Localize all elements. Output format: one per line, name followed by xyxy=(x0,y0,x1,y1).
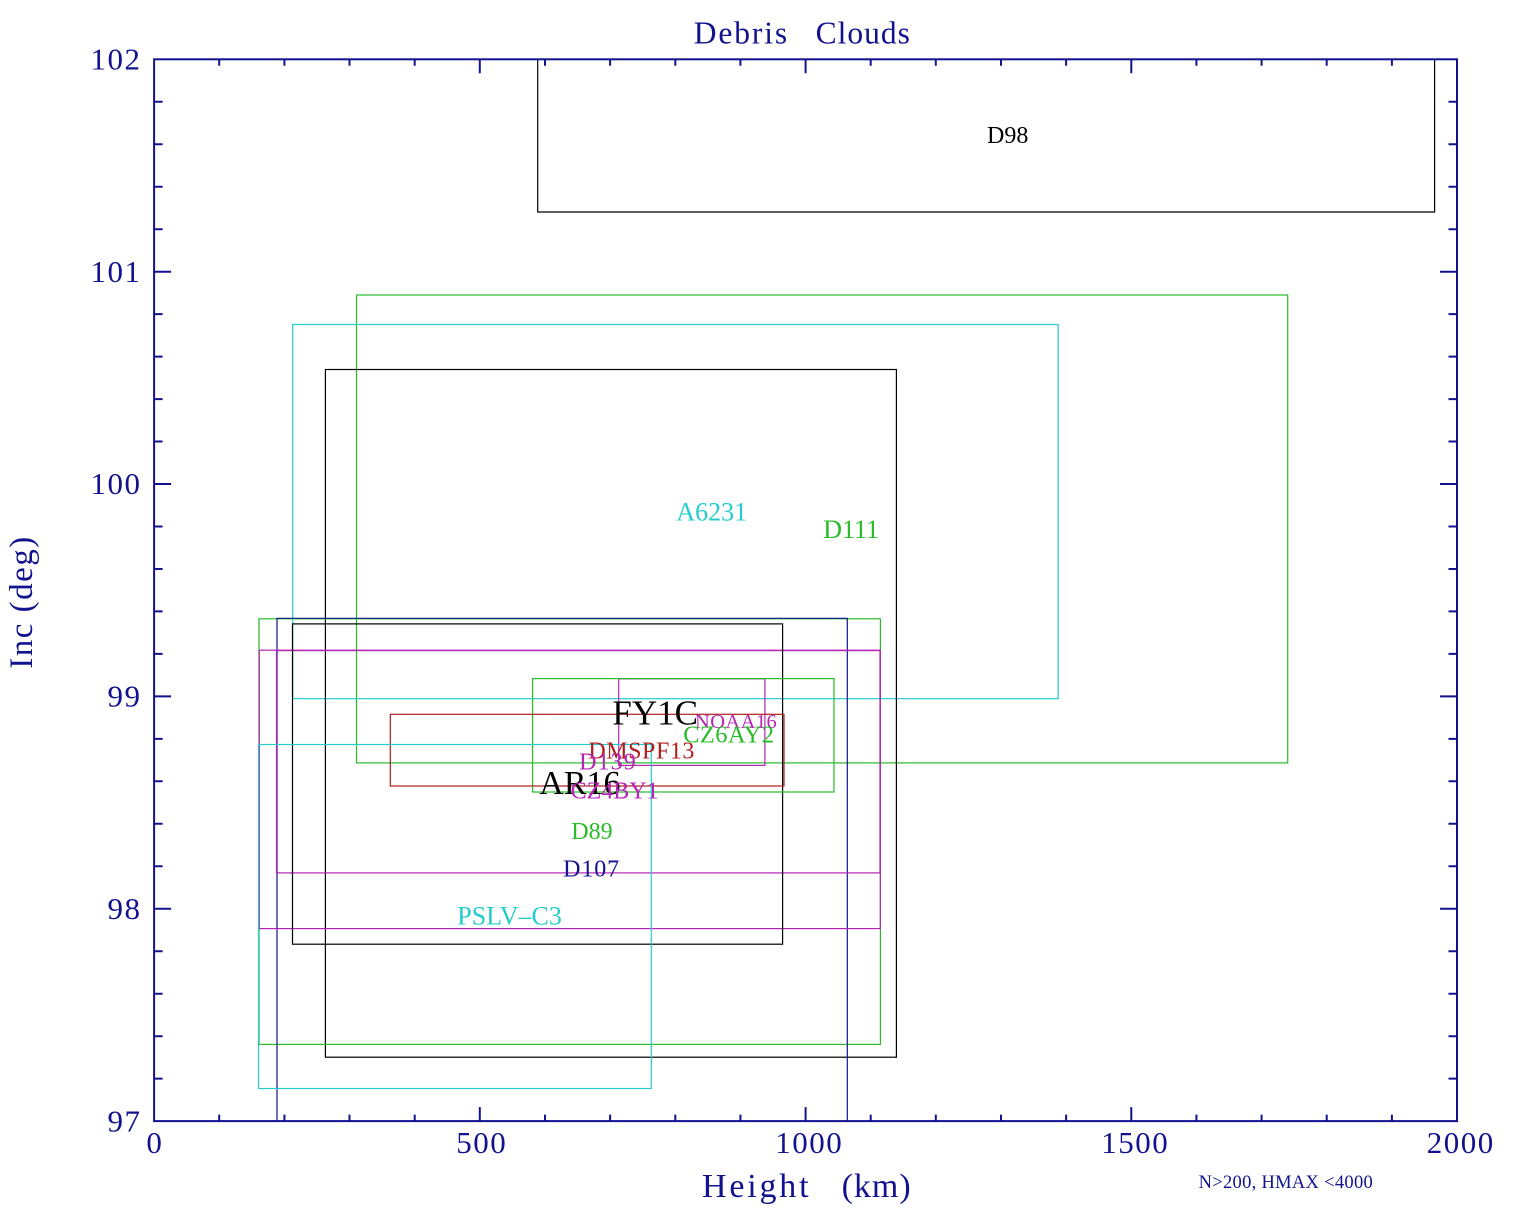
svg-text:PSLV–C3: PSLV–C3 xyxy=(457,901,562,930)
svg-text:D107: D107 xyxy=(563,857,620,883)
svg-text:0: 0 xyxy=(146,1125,163,1160)
svg-text:N>200, HMAX <4000: N>200, HMAX <4000 xyxy=(1199,1173,1373,1193)
svg-text:A6231: A6231 xyxy=(676,497,747,526)
svg-text:1000: 1000 xyxy=(775,1125,843,1160)
svg-text:99: 99 xyxy=(108,679,142,714)
svg-text:CZ6AY2: CZ6AY2 xyxy=(683,722,774,749)
svg-text:500: 500 xyxy=(456,1125,507,1160)
svg-text:97: 97 xyxy=(108,1103,142,1138)
svg-text:Height: Height xyxy=(702,1168,811,1205)
svg-text:2000: 2000 xyxy=(1427,1125,1495,1160)
svg-text:D98: D98 xyxy=(987,123,1028,149)
svg-text:98: 98 xyxy=(108,891,142,926)
svg-text:D111: D111 xyxy=(823,515,879,544)
svg-text:100: 100 xyxy=(91,466,142,501)
svg-text:1500: 1500 xyxy=(1101,1125,1169,1160)
svg-text:Inc (deg): Inc (deg) xyxy=(4,535,40,669)
svg-text:101: 101 xyxy=(91,254,142,289)
svg-text:D89: D89 xyxy=(571,819,612,845)
svg-text:102: 102 xyxy=(91,42,142,77)
svg-text:(km): (km) xyxy=(842,1168,912,1205)
svg-text:Debris: Debris xyxy=(694,16,789,51)
svg-text:CZ4BY1: CZ4BY1 xyxy=(571,778,659,804)
svg-text:Clouds: Clouds xyxy=(816,16,911,51)
